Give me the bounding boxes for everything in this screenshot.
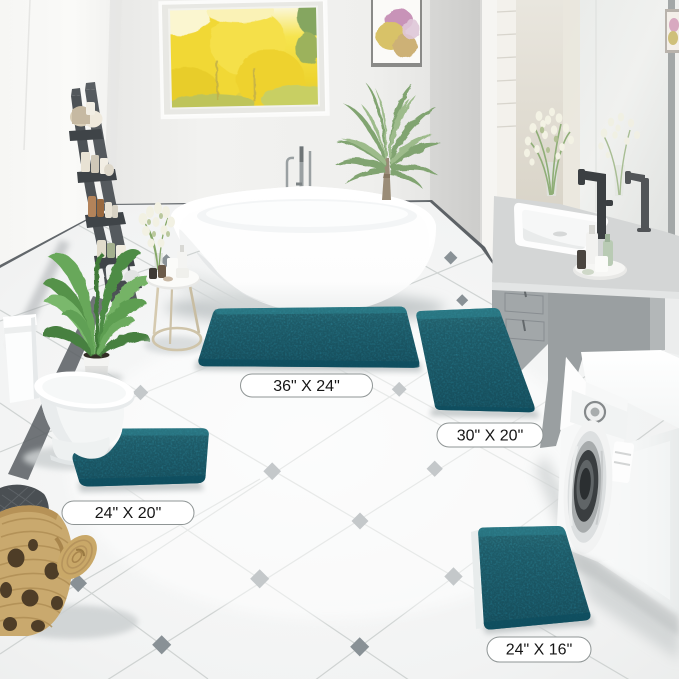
svg-text:36" X 24": 36" X 24"	[273, 378, 340, 395]
svg-text:24" X 16": 24" X 16"	[506, 642, 573, 659]
svg-text:30" X 20": 30" X 20"	[457, 428, 524, 445]
svg-text:24" X 20": 24" X 20"	[95, 505, 162, 522]
